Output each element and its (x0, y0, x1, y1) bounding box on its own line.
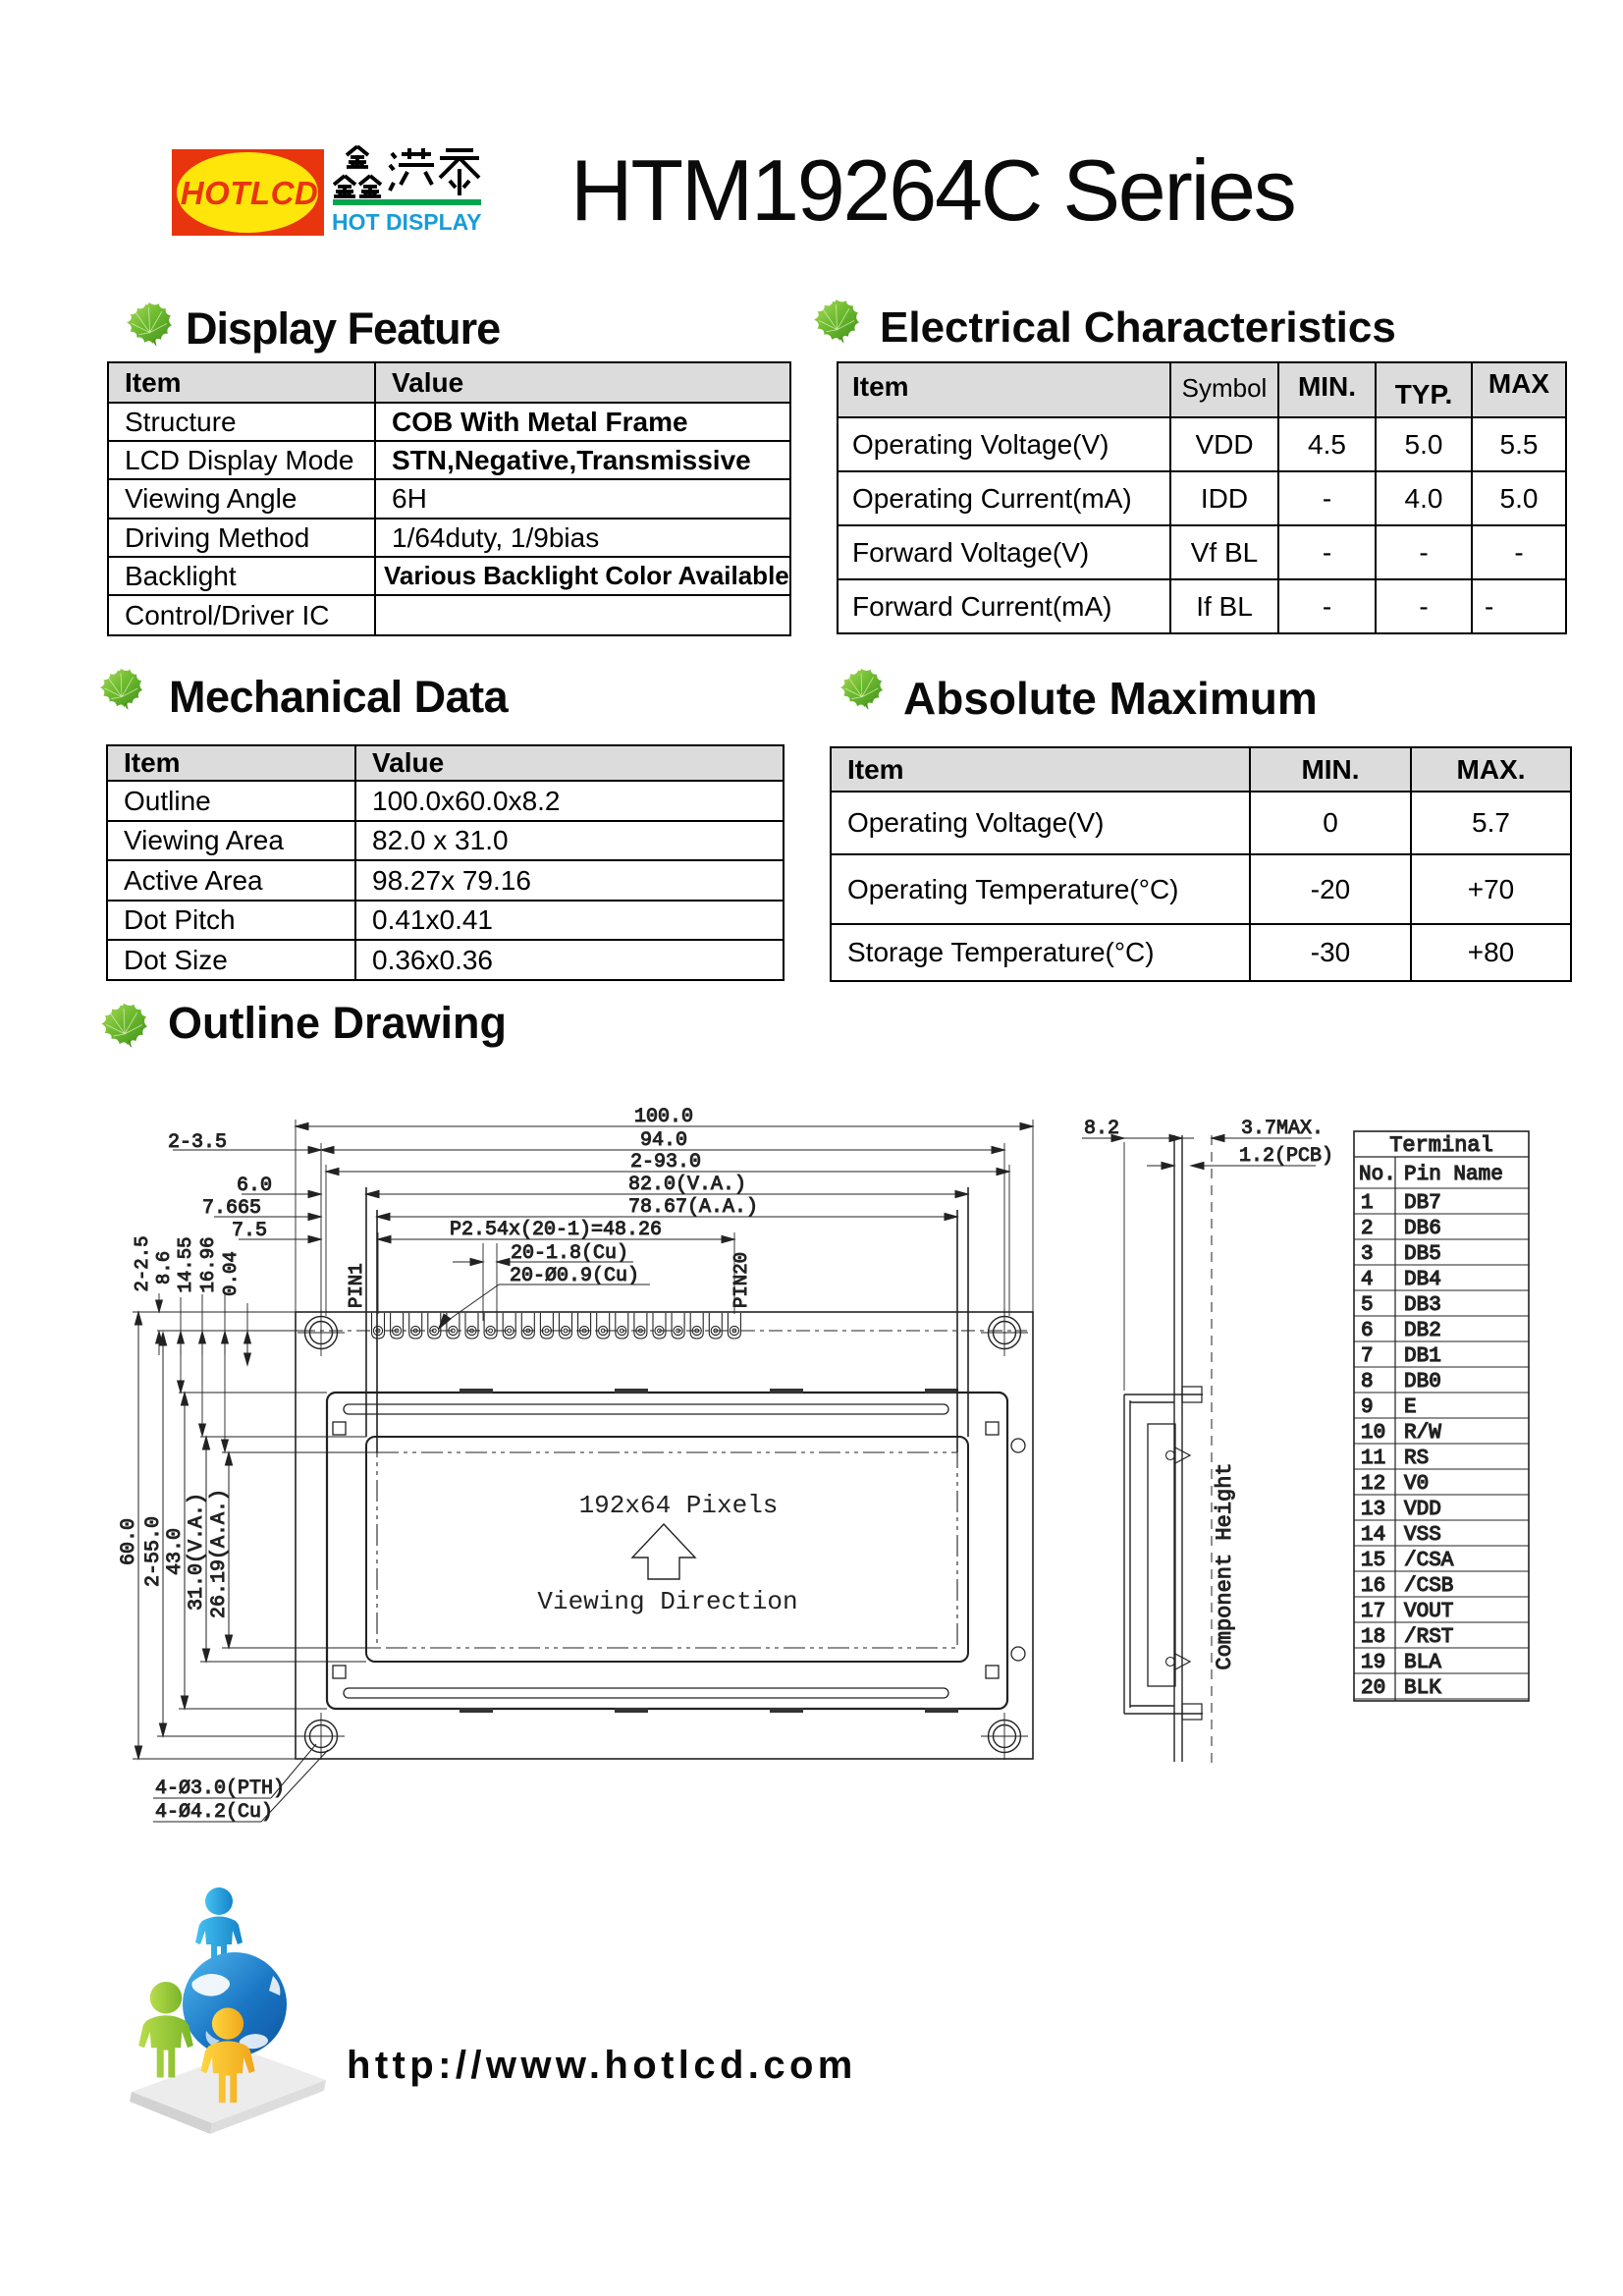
svg-text:DB3: DB3 (1404, 1294, 1441, 1317)
svg-text:DB4: DB4 (1404, 1269, 1441, 1291)
svg-text:Component Height: Component Height (1213, 1462, 1237, 1669)
svg-text:BLA: BLA (1404, 1652, 1441, 1674)
svg-text:17: 17 (1361, 1601, 1385, 1623)
svg-text:RS: RS (1404, 1448, 1429, 1470)
svg-text:2-2.5: 2-2.5 (132, 1235, 153, 1291)
svg-text:12: 12 (1361, 1473, 1385, 1496)
svg-text:DB2: DB2 (1404, 1320, 1441, 1342)
svg-text:R/W: R/W (1404, 1422, 1441, 1445)
svg-text:82.0(V.A.): 82.0(V.A.) (628, 1174, 746, 1196)
svg-text:19: 19 (1361, 1652, 1385, 1674)
svg-text:4: 4 (1361, 1269, 1374, 1291)
svg-text:DB0: DB0 (1404, 1371, 1441, 1394)
svg-text:16.96: 16.96 (197, 1236, 219, 1292)
svg-text:/CSB: /CSB (1404, 1575, 1453, 1598)
svg-text:10: 10 (1361, 1422, 1385, 1445)
svg-text:Pin Name: Pin Name (1404, 1164, 1503, 1186)
svg-text:100.0: 100.0 (634, 1106, 693, 1128)
svg-text:43.0: 43.0 (164, 1528, 187, 1575)
svg-text:4-Ø4.2(Cu): 4-Ø4.2(Cu) (155, 1801, 273, 1824)
svg-text:V0: V0 (1404, 1473, 1429, 1496)
svg-text:26.19(A.A.): 26.19(A.A.) (208, 1489, 231, 1618)
svg-text:DB6: DB6 (1404, 1218, 1441, 1240)
svg-text:1: 1 (1361, 1192, 1374, 1215)
svg-text:14: 14 (1361, 1524, 1385, 1547)
svg-text:VDD: VDD (1404, 1499, 1441, 1521)
svg-text:DB7: DB7 (1404, 1192, 1441, 1215)
svg-text:3.7MAX.: 3.7MAX. (1241, 1118, 1324, 1140)
svg-text:PIN20: PIN20 (730, 1252, 752, 1308)
svg-text:2-55.0: 2-55.0 (142, 1516, 165, 1587)
svg-text:/RST: /RST (1404, 1626, 1453, 1649)
svg-text:9: 9 (1361, 1396, 1374, 1419)
svg-text:60.0: 60.0 (118, 1518, 140, 1565)
svg-text:8.6: 8.6 (153, 1251, 175, 1285)
svg-text:DB5: DB5 (1404, 1243, 1441, 1266)
svg-text:BLK: BLK (1404, 1677, 1441, 1700)
svg-text:Terminal: Terminal (1389, 1133, 1493, 1158)
svg-text:Viewing Direction: Viewing Direction (537, 1587, 797, 1616)
svg-text:14.55: 14.55 (175, 1236, 196, 1292)
svg-text:DB1: DB1 (1404, 1345, 1441, 1368)
svg-text:192x64 Pixels: 192x64 Pixels (579, 1491, 779, 1520)
svg-text:6: 6 (1361, 1320, 1374, 1342)
svg-text:VSS: VSS (1404, 1524, 1441, 1547)
svg-text:P2.54x(20-1)=48.26: P2.54x(20-1)=48.26 (450, 1219, 662, 1241)
svg-text:E: E (1404, 1396, 1417, 1419)
svg-text:2: 2 (1361, 1218, 1374, 1240)
svg-text:78.67(A.A.): 78.67(A.A.) (628, 1196, 758, 1219)
svg-text:2-93.0: 2-93.0 (630, 1151, 701, 1174)
svg-text:PIN1: PIN1 (346, 1263, 367, 1308)
svg-text:5: 5 (1361, 1294, 1374, 1317)
svg-text:94.0: 94.0 (640, 1129, 687, 1152)
svg-text:15: 15 (1361, 1550, 1385, 1572)
svg-text:16: 16 (1361, 1575, 1385, 1598)
svg-text:13: 13 (1361, 1499, 1385, 1521)
svg-text:VOUT: VOUT (1404, 1601, 1453, 1623)
svg-text:3: 3 (1361, 1243, 1374, 1266)
svg-text:11: 11 (1361, 1448, 1385, 1470)
svg-text:18: 18 (1361, 1626, 1385, 1649)
svg-text:4-Ø3.0(PTH): 4-Ø3.0(PTH) (155, 1777, 285, 1800)
svg-text:8: 8 (1361, 1371, 1374, 1394)
svg-text:7: 7 (1361, 1345, 1374, 1368)
svg-text:2-3.5: 2-3.5 (168, 1131, 227, 1154)
svg-text:31.0(V.A.): 31.0(V.A.) (186, 1493, 208, 1611)
svg-text:/CSA: /CSA (1404, 1550, 1454, 1572)
svg-text:20: 20 (1361, 1677, 1385, 1700)
svg-text:0.04: 0.04 (220, 1251, 242, 1296)
svg-text:No.: No. (1359, 1164, 1396, 1186)
svg-text:1.2(PCB): 1.2(PCB) (1239, 1145, 1333, 1168)
svg-text:HOTLCD: HOTLCD (181, 175, 318, 211)
